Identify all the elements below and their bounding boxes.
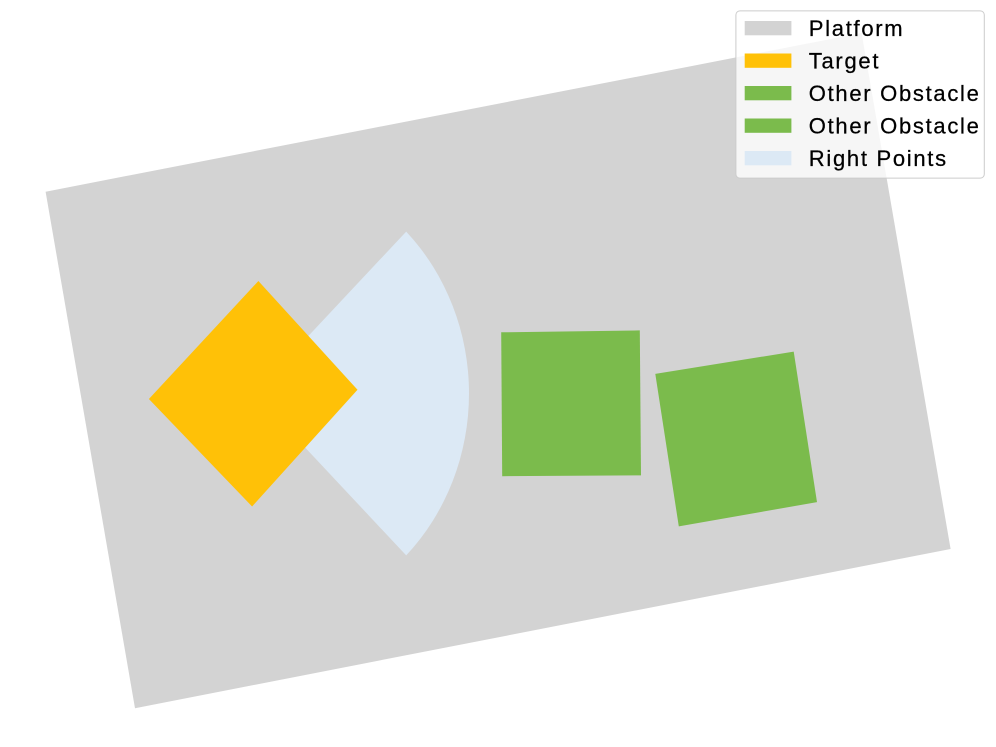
svg-text:Target: Target bbox=[809, 48, 880, 73]
svg-text:Right Points: Right Points bbox=[809, 146, 948, 171]
svg-text:Other Obstacle: Other Obstacle bbox=[809, 113, 981, 138]
svg-text:Other Obstacle: Other Obstacle bbox=[809, 81, 981, 106]
svg-text:Platform: Platform bbox=[809, 16, 905, 41]
